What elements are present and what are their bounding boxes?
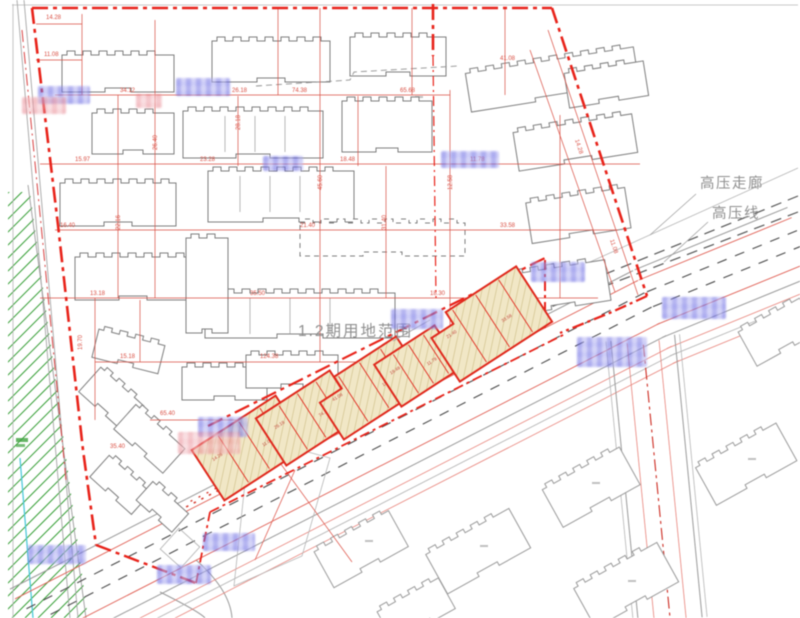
- dimension-label: 33.58: [500, 223, 516, 229]
- building-footprint: [342, 97, 432, 152]
- green-area-mark: [16, 438, 28, 442]
- dimension-label: 26.40: [153, 134, 159, 150]
- hv-corridor-label: 高压走廊: [700, 175, 764, 192]
- redacted-label: [136, 94, 162, 108]
- hv-line-label: 高压线: [712, 205, 760, 222]
- redacted-label: [157, 565, 211, 584]
- building-footprint: [572, 539, 679, 618]
- building-footprint: [186, 234, 228, 333]
- dimension-label: 21.40: [300, 223, 316, 229]
- dimension-label: 35.50: [250, 291, 266, 297]
- dimension-label: 11.08: [608, 239, 618, 255]
- dimension-label: 34.12: [120, 88, 136, 94]
- dimension-label: 28.18: [236, 114, 242, 130]
- dimension-label: 15.18: [120, 354, 136, 360]
- building-footprint: [694, 420, 797, 506]
- building-footprint: [212, 37, 330, 82]
- dimension-label: 11.08: [44, 52, 59, 58]
- building-footprint: [540, 444, 640, 528]
- redacted-label: [28, 545, 86, 564]
- dimension-label: 12.58: [448, 174, 454, 190]
- dimension-label: 14.28: [46, 15, 62, 21]
- building-footprint: [350, 33, 446, 76]
- building-footprint: [525, 183, 631, 243]
- dimension-label: 31.40: [382, 214, 388, 230]
- dimension-label: 45.60: [318, 174, 324, 190]
- site-plan-page: 14.2811.0834.1226.1874.3865.6841.0815.97…: [0, 0, 800, 618]
- dimension-label: 65.40: [160, 411, 176, 417]
- dimension-label: 65.68: [400, 88, 416, 94]
- dimension-label: 26.18: [232, 88, 248, 94]
- building-footprint: [92, 109, 174, 154]
- dimension-label: 41.08: [500, 56, 516, 62]
- dimension-label: 13.18: [90, 291, 106, 297]
- building-footprint: [208, 167, 354, 222]
- redacted-label: [22, 97, 66, 114]
- dimension-label: 23.28: [200, 157, 216, 163]
- dimension-label: 15.97: [75, 157, 91, 163]
- redacted-label: [203, 533, 255, 551]
- building-footprint: [183, 107, 323, 158]
- redacted-label: [178, 432, 240, 454]
- redacted-label: [441, 151, 499, 168]
- dimension-label: 35.40: [110, 444, 126, 450]
- building-footprint: [736, 295, 800, 367]
- redacted-label: [531, 262, 585, 282]
- building-footprint: [92, 325, 166, 373]
- dimension-label: 124.38: [260, 354, 279, 360]
- redacted-label: [263, 156, 303, 171]
- dimension-label: 74.38: [292, 88, 308, 94]
- redacted-label: [176, 78, 230, 96]
- dimension-label: 22.16: [116, 214, 122, 230]
- redacted-label: [391, 309, 443, 329]
- dimension-label: 18.30: [430, 291, 446, 297]
- redacted-label: [577, 337, 647, 367]
- dimension-label: 16.40: [60, 223, 76, 229]
- dimension-label: 18.48: [340, 157, 356, 163]
- building-footprint: [312, 507, 408, 588]
- dimension-label: 19.70: [78, 334, 84, 350]
- redacted-label: [662, 297, 726, 319]
